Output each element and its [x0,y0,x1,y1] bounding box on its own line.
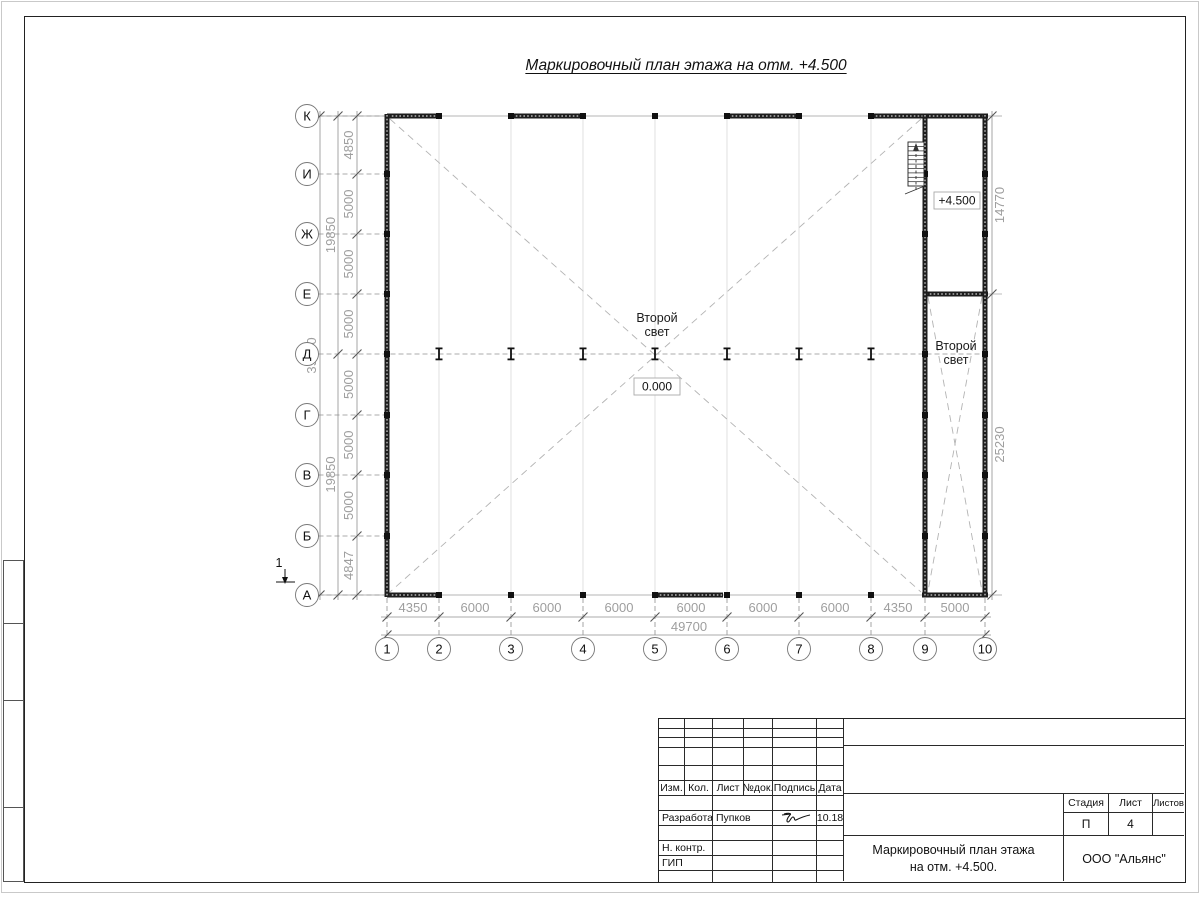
dim-bottom: 4350 [884,600,913,615]
left-edge-strip [3,560,24,882]
axis-label: А [303,588,312,603]
developed-name: Пупков [713,811,773,825]
column-marker [982,412,988,418]
dim-bottom: 6000 [821,600,850,615]
ibeam-flange [796,359,803,361]
column-marker [384,472,390,478]
column-marker [384,171,390,177]
column-marker [384,231,390,237]
column-marker [796,592,802,598]
column-marker [922,351,928,357]
dim-bottom: 5000 [941,600,970,615]
ibeam-column [870,349,872,361]
section-mark-label: 1 [276,556,283,570]
column-marker [982,533,988,539]
axis-label: Е [303,287,312,302]
titleblock: Изм. Кол. Лист №док. Подпись Дата Разраб… [658,718,1186,883]
dim-left: 5000 [341,310,356,339]
ibeam-flange [724,359,731,361]
tb-mid-left-cell [844,794,1064,836]
col-ndok: №док. [744,781,773,795]
column-marker [922,472,928,478]
ibeam-column [510,349,512,361]
sheets-label: Листов [1153,794,1184,813]
elev-450-label: +4.500 [938,194,975,208]
drawing-sheet: Маркировочный план этажа на отм. +4.500 … [0,0,1200,900]
doc-title-line1: Маркировочный план этажа [872,843,1034,857]
axis-label: 9 [921,642,928,657]
axis-label: 8 [867,642,874,657]
ibeam-flange [436,359,443,361]
ibeam-flange [508,348,515,350]
developed-label: Разработал [659,811,713,825]
column-marker [868,113,874,119]
company-cell: ООО "Альянс" [1064,836,1184,881]
section-arrow-head [282,577,288,584]
column-marker [508,113,514,119]
column-marker [796,113,802,119]
wall [387,593,441,598]
sheet-label: Лист [1109,794,1153,813]
col-list: Лист [713,781,744,795]
second-light-label: Второй [636,311,677,325]
dim-bottom: 4350 [399,600,428,615]
axis-label: 1 [383,642,390,657]
dim-bottom: 6000 [605,600,634,615]
dim-left: 5000 [341,370,356,399]
column-marker [508,592,514,598]
ibeam-column [582,349,584,361]
ibeam-column [438,349,440,361]
ibeam-flange [652,359,659,361]
axis-label: В [303,468,312,483]
revision-header-row: Изм. Кол. Лист №док. Подпись Дата [659,781,843,796]
column-marker [922,533,928,539]
ibeam-flange [580,359,587,361]
column-marker [652,592,658,598]
col-kol: Кол. [685,781,713,795]
axis-label: 10 [978,642,992,657]
axis-label: 5 [651,642,658,657]
column-marker [982,472,988,478]
dim-left-mid: 19850 [323,217,338,253]
ibeam-flange [868,359,875,361]
revision-table: Изм. Кол. Лист №док. Подпись Дата Разраб… [659,719,844,881]
gip-label: ГИП [659,856,713,870]
ibeam-flange [508,359,515,361]
dim-left: 5000 [341,491,356,520]
ibeam-flange [652,348,659,350]
column-marker [580,113,586,119]
column-marker [436,592,442,598]
dim-right: 14770 [992,187,1007,223]
axis-label: Д [303,347,312,362]
signature-cell [773,811,817,825]
ibeam-column [798,349,800,361]
dim-left-mid: 19850 [323,456,338,492]
ncontr-label: Н. контр. [659,841,713,855]
stage-value: П [1064,813,1109,836]
column-marker [436,113,442,119]
column-marker [922,412,928,418]
ibeam-flange [436,348,443,350]
axis-label: Б [303,529,312,544]
axis-label: Г [303,408,310,423]
axis-label: 7 [795,642,802,657]
column-marker [982,351,988,357]
axis-label: К [303,109,311,124]
column-marker [580,592,586,598]
column-marker [922,231,928,237]
sheets-value [1153,813,1184,836]
gip-row: ГИП [659,856,843,871]
developed-date: 10.18 [817,811,843,825]
ibeam-flange [724,348,731,350]
dim-left: 5000 [341,250,356,279]
dim-left: 4850 [341,131,356,160]
tb-top-cell [844,719,1184,746]
dim-left: 5000 [341,190,356,219]
axis-label: 3 [507,642,514,657]
second-light-bay-label: Второй [935,339,976,353]
column-marker [384,412,390,418]
col-izm: Изм. [659,781,685,795]
tb-code-cell [844,746,1184,794]
ibeam-column [654,349,656,361]
dim-left: 5000 [341,431,356,460]
developed-row: Разработал Пупков 10.18 [659,811,843,826]
col-data: Дата [817,781,843,795]
stage-label: Стадия [1064,794,1109,813]
doc-title-line2: на отм. +4.500. [910,860,997,874]
column-marker [724,592,730,598]
sheet-value: 4 [1109,813,1153,836]
axis-label: 4 [579,642,586,657]
dim-right: 25230 [992,426,1007,462]
column-marker [868,592,874,598]
ibeam-flange [868,348,875,350]
doc-title-cell: Маркировочный план этажа на отм. +4.500. [844,836,1064,881]
ibeam-flange [580,348,587,350]
axis-label: Ж [301,227,313,242]
dim-bottom: 6000 [533,600,562,615]
dim-bottom: 6000 [677,600,706,615]
elev-zero-label: 0.000 [642,380,672,394]
dim-bottom-total: 49700 [671,619,707,634]
wall [387,114,441,119]
dim-left: 4847 [341,551,356,580]
column-marker [724,113,730,119]
second-light-bay-label: свет [943,353,968,367]
signature-scribble [778,812,812,825]
axis-label: 6 [723,642,730,657]
col-podpis: Подпись [773,781,817,795]
ibeam-column [726,349,728,361]
ncontr-row: Н. контр. [659,841,843,856]
column-marker [652,113,658,119]
axis-label: И [302,167,311,182]
second-light-label: свет [644,325,669,339]
dim-bottom: 6000 [749,600,778,615]
column-marker [384,351,390,357]
ibeam-flange [796,348,803,350]
axis-label: 2 [435,642,442,657]
dim-bottom: 6000 [461,600,490,615]
column-marker [384,291,390,297]
column-marker [982,171,988,177]
column-marker [384,533,390,539]
column-marker [982,231,988,237]
